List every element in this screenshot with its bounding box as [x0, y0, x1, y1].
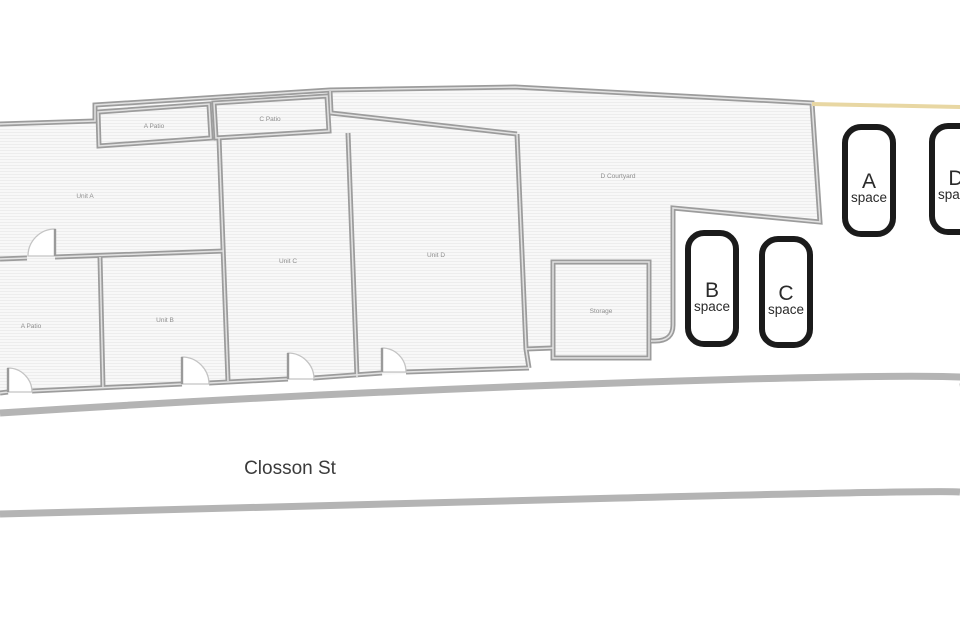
north-boundary-line	[812, 104, 960, 107]
unit-d-label: Unit D	[427, 252, 445, 259]
parking-a-caption: space	[851, 190, 887, 205]
parking-c-caption: space	[768, 302, 804, 317]
floor-plan: A Patio C Patio Unit A Unit B Unit C Uni…	[0, 0, 960, 640]
floor-plan-page: A Patio C Patio Unit A Unit B Unit C Uni…	[0, 0, 960, 640]
unit-a-label: Unit A	[76, 193, 94, 200]
street-name: Closson St	[244, 458, 337, 479]
c-patio-label: C Patio	[259, 116, 281, 123]
a-patio-top-label: A Patio	[144, 123, 165, 130]
unit-b-label: Unit B	[156, 317, 174, 324]
street-edges	[0, 376, 960, 514]
parking-b-caption: space	[694, 299, 730, 314]
unit-c-label: Unit C	[279, 258, 297, 265]
storage-label: Storage	[590, 308, 613, 315]
a-patio-bottom-label: A Patio	[21, 323, 42, 330]
d-courtyard-label: D Courtyard	[600, 173, 635, 180]
parking-d-caption: space	[938, 187, 960, 202]
street-edge-far	[0, 492, 960, 514]
